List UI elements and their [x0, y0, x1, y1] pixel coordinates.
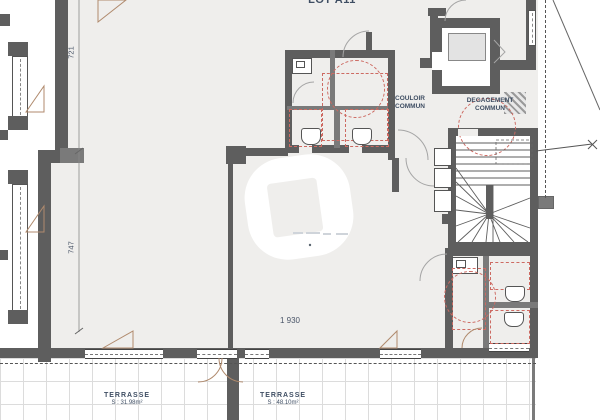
facade-stub [0, 14, 10, 26]
room-label-line: COMMUN [458, 105, 522, 113]
stair-newel-wall [486, 185, 493, 219]
window-cap [8, 42, 28, 56]
logo-watermark-hole [267, 177, 324, 237]
property-dashed-line [545, 0, 546, 198]
window-bottom-2 [245, 349, 269, 359]
toilet-fixture [504, 312, 524, 327]
shaft-box [434, 168, 452, 188]
elevator-top-wall [432, 18, 500, 28]
door-bottom-terrace-1 [197, 349, 237, 359]
terrace-label-2: TERRASSE S : 48.10m² [243, 392, 323, 408]
terrace-label-1: TERRASSE S : 31.98m² [87, 392, 167, 408]
terrace-dashed-line [0, 363, 536, 364]
wall-inner-vertical [228, 156, 233, 350]
shaft-box [434, 148, 452, 166]
room-label-couloir: COULOIR COMMUN [384, 95, 436, 111]
terrace-right-edge [532, 358, 535, 420]
stair-door-gap [458, 129, 478, 136]
lot-label: LOT A11 [280, 0, 384, 7]
dimension-1930: 1 930 [258, 316, 322, 325]
terrace-name: TERRASSE [87, 392, 167, 400]
dimension-747: 747 [67, 231, 76, 265]
elevator-door-gap [432, 52, 442, 70]
corridor-stub [392, 158, 399, 192]
terrace-divider-wall [227, 356, 239, 420]
floor-left-extension [50, 155, 60, 352]
sink-basin [456, 260, 466, 268]
room-label-line: COMMUN [384, 103, 436, 111]
terrace-area: S : 48.10m² [243, 400, 323, 407]
window-left-lower [12, 184, 28, 312]
bath2-right-wall [530, 248, 538, 348]
elevator-bottom-wall [432, 86, 500, 94]
window-cap [8, 310, 28, 324]
facade-stub [0, 250, 8, 260]
elevator-right-wall [490, 28, 500, 94]
room-label-degagement: DEGAGEMENT COMMUN [458, 97, 522, 113]
entry-door-leaf [366, 32, 372, 58]
shaft-box [434, 190, 452, 212]
room-label-line: DEGAGEMENT [458, 97, 522, 105]
window-bottom-1 [85, 349, 163, 359]
facade-stub [0, 130, 8, 140]
window-left-upper [12, 56, 28, 118]
window-top-right [528, 10, 536, 46]
diagonal-line [553, 0, 600, 110]
window-bottom-3 [380, 349, 421, 359]
dimension-721: 721 [67, 36, 76, 70]
toilet-fixture [505, 286, 525, 302]
bath2-top-wall [445, 248, 538, 256]
wall-bottom [0, 348, 538, 358]
survey-box [538, 196, 554, 209]
terrace-tile-grid [0, 358, 536, 420]
wall-inner-horizontal [226, 148, 288, 156]
column-left [60, 148, 84, 163]
terrace-name: TERRASSE [243, 392, 323, 400]
wall-left-upper [55, 0, 68, 162]
terrace-area: S : 31.98m² [87, 400, 167, 407]
corridor-wall-cap [428, 8, 446, 16]
window-cap [8, 116, 28, 130]
toilet-fixture [352, 128, 372, 145]
bath-top-wall [285, 50, 395, 58]
room-label-line: COULOIR [384, 95, 436, 103]
shower-outline [452, 268, 486, 330]
toilet-fixture [301, 128, 321, 145]
wall-left-lower [38, 150, 51, 362]
elevator-car [448, 33, 486, 61]
floor-plan-canvas: LOT A11 COULOIR COMMUN DEGAGEMENT COMMUN… [0, 0, 600, 420]
window-bathroom-low [489, 343, 529, 352]
window-cap [8, 170, 28, 184]
sink-basin [296, 61, 305, 68]
